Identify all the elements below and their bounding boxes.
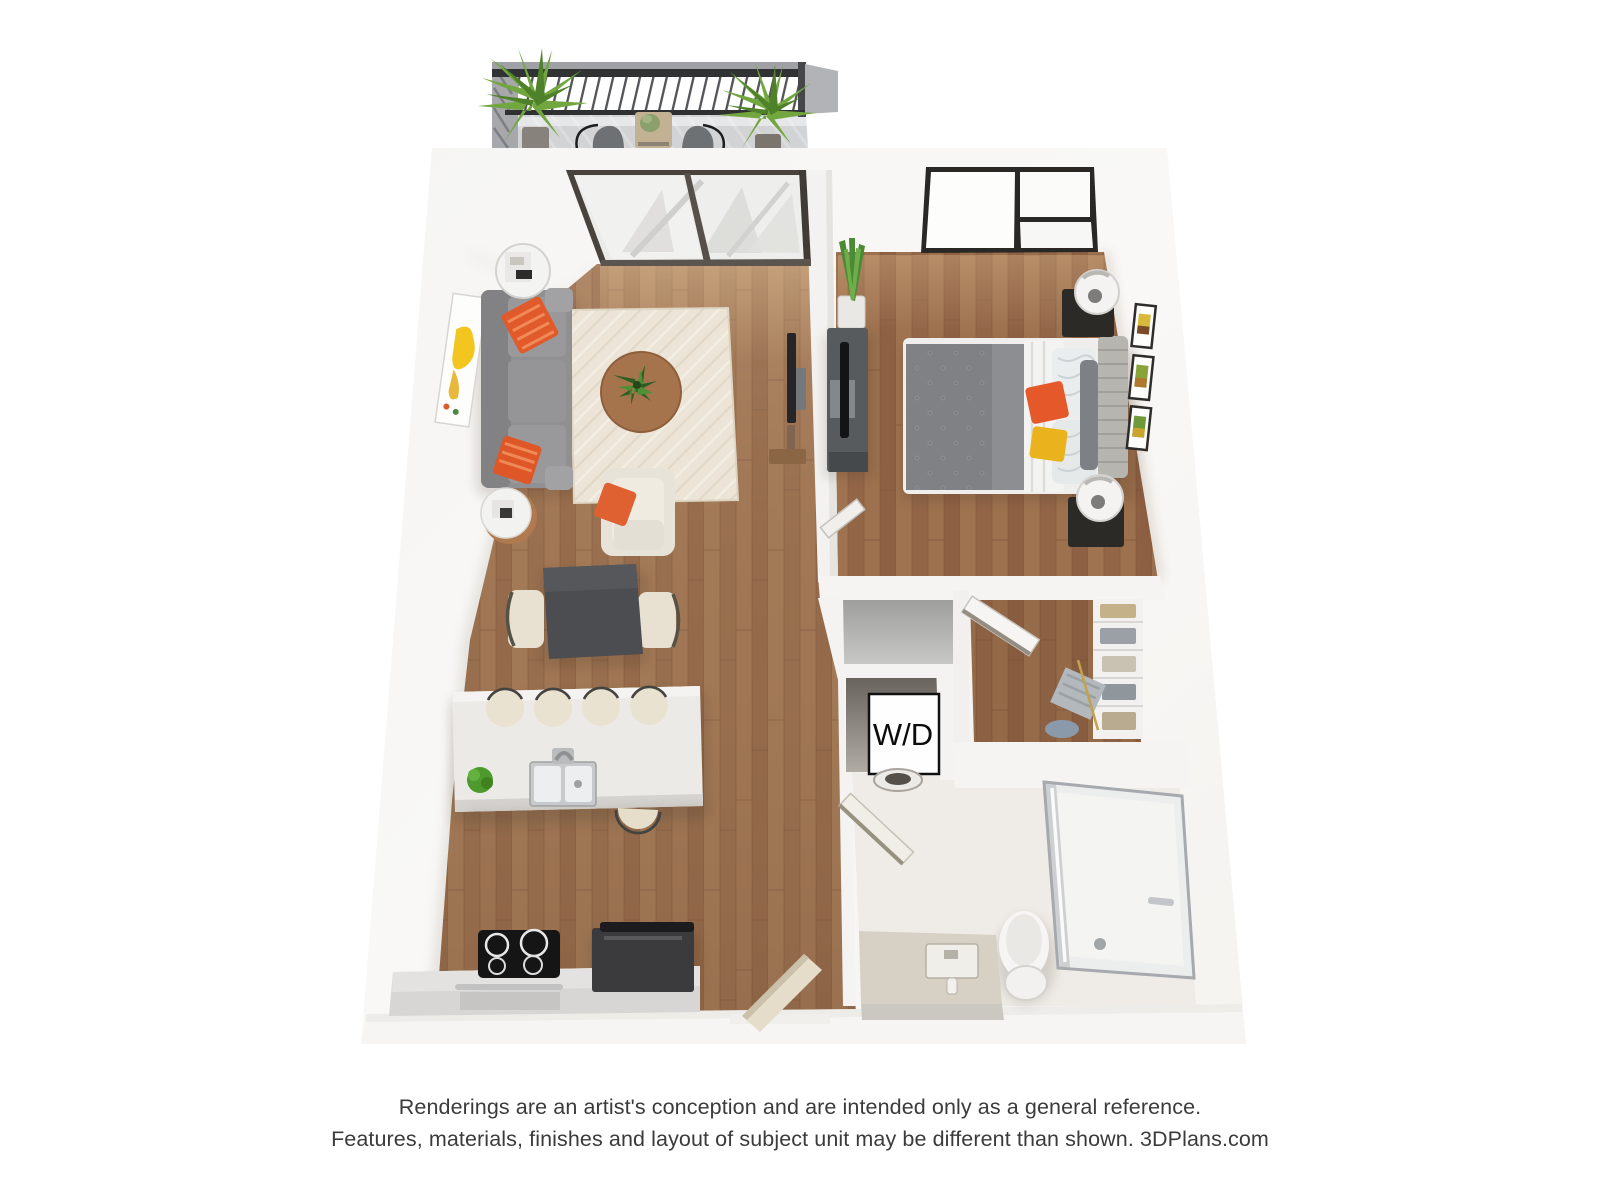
svg-text:W/D: W/D <box>873 717 933 752</box>
